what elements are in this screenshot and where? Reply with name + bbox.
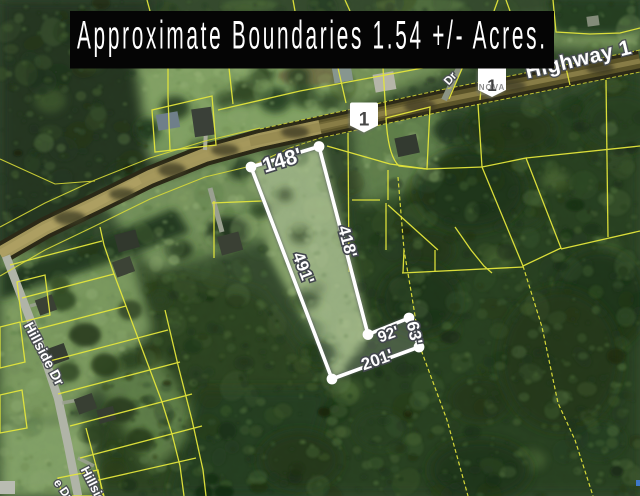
- svg-text:Approximate Boundaries 1.54 +/: Approximate Boundaries 1.54 +/- Acres.: [77, 12, 545, 57]
- svg-text:1: 1: [359, 110, 370, 131]
- svg-text:1: 1: [487, 76, 496, 95]
